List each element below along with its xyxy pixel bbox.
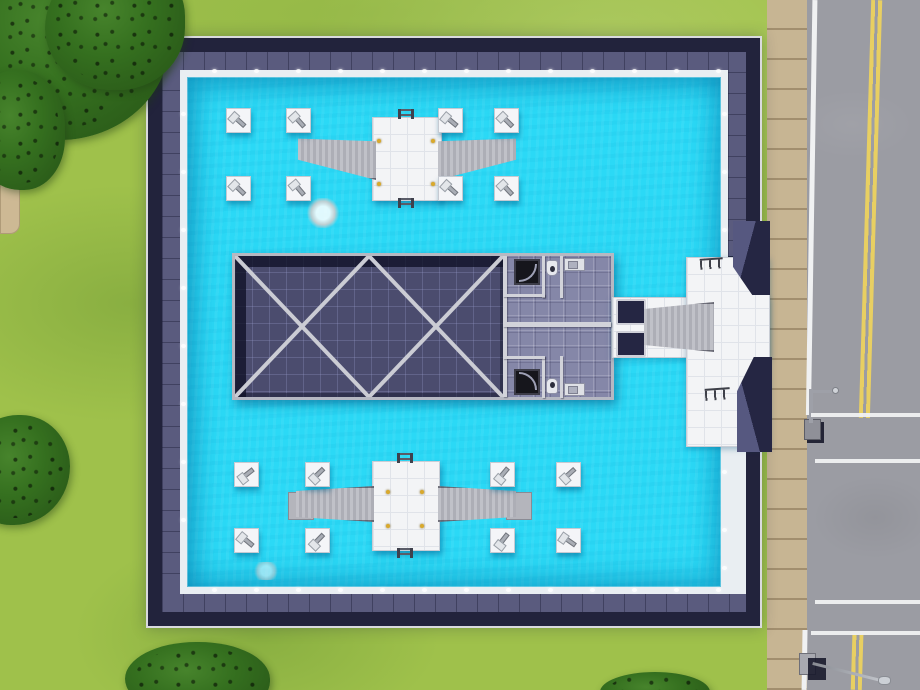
street-lamp-shadow (808, 658, 826, 680)
street-lamp-head (832, 387, 839, 394)
pool-light (254, 69, 259, 73)
entrance-gate-block (616, 299, 646, 325)
diving-board[interactable] (231, 181, 247, 196)
platform-marker-light (431, 139, 435, 143)
diving-platform[interactable] (490, 462, 515, 487)
sidewalk (767, 0, 807, 690)
pool-deck-edge (728, 446, 746, 594)
diving-board[interactable] (495, 532, 509, 548)
pool-light (506, 588, 511, 592)
diving-board[interactable] (291, 113, 306, 129)
restroom-wall (503, 322, 611, 327)
diving-board[interactable] (231, 113, 247, 128)
water-slide[interactable] (296, 486, 374, 522)
pool-light (181, 228, 186, 232)
pool-light (722, 112, 727, 116)
pool-light (380, 69, 385, 73)
pool-light (181, 112, 186, 116)
pool-light (212, 588, 217, 592)
roof-cross-bracing-icon (235, 256, 503, 397)
road-stop-line (815, 600, 920, 604)
pool-light (716, 588, 721, 592)
restroom-wall (542, 356, 545, 398)
toilet[interactable] (546, 378, 558, 394)
street-lamp-arm (812, 390, 834, 393)
diving-platform[interactable] (234, 462, 259, 487)
pool-light (674, 69, 679, 73)
pool-light (464, 588, 469, 592)
pool-light (674, 588, 679, 592)
pool-light (548, 69, 553, 73)
diving-board[interactable] (442, 113, 458, 128)
water-splash (306, 198, 340, 228)
restroom-wall (542, 256, 545, 298)
diving-board[interactable] (495, 466, 510, 482)
road-stop-line (811, 413, 920, 417)
water-splash (252, 562, 280, 580)
sink[interactable] (564, 258, 585, 271)
pool-light (181, 170, 186, 174)
pool-light (181, 518, 186, 522)
pool-light (722, 528, 727, 532)
pool-light (422, 588, 427, 592)
roof-tile-band (162, 594, 746, 612)
hall-roof (235, 256, 503, 397)
pool-light (632, 588, 637, 592)
diving-platform[interactable] (226, 176, 251, 201)
platform-marker-light (431, 182, 435, 186)
swim-platform[interactable] (372, 461, 440, 551)
diving-platform[interactable] (438, 176, 463, 201)
pool-light (716, 69, 721, 73)
pool-light (296, 69, 301, 73)
pool-light (338, 69, 343, 73)
pool-light (548, 588, 553, 592)
diving-board[interactable] (499, 181, 514, 197)
diving-platform[interactable] (494, 176, 519, 201)
diving-board[interactable] (561, 467, 577, 482)
diving-platform[interactable] (494, 108, 519, 133)
pool-light (506, 69, 511, 73)
diving-platform[interactable] (226, 108, 251, 133)
diving-platform[interactable] (438, 108, 463, 133)
diving-platform[interactable] (286, 108, 311, 133)
entrance-gate-block (616, 331, 646, 357)
pool-light (380, 588, 385, 592)
diving-platform[interactable] (556, 462, 581, 487)
street-lamp-pole (809, 389, 813, 423)
pool-ladder[interactable] (397, 548, 413, 558)
pool-light (422, 69, 427, 73)
swim-platform[interactable] (372, 117, 442, 201)
diving-board[interactable] (238, 533, 254, 548)
toilet[interactable] (546, 260, 558, 276)
restroom-wall (503, 294, 545, 297)
pool-ladder[interactable] (398, 109, 414, 119)
entrance-railing[interactable] (705, 387, 731, 401)
pool-light (181, 344, 186, 348)
sink[interactable] (564, 383, 585, 396)
pool-light (181, 286, 186, 290)
pool-light (632, 69, 637, 73)
diving-board[interactable] (499, 113, 515, 129)
center-line-segment (851, 635, 864, 690)
roof-tile-band (162, 52, 746, 70)
road-stop-line (811, 631, 920, 635)
water-slide[interactable] (438, 486, 516, 522)
platform-marker-light (420, 524, 424, 528)
diving-board[interactable] (443, 181, 459, 196)
diving-board[interactable] (310, 533, 325, 549)
pool-ladder[interactable] (397, 453, 413, 463)
diving-platform[interactable] (305, 462, 330, 487)
pool-light (212, 69, 217, 73)
game-viewport (0, 0, 920, 690)
diving-platform[interactable] (234, 528, 259, 553)
roof-tile-band (162, 70, 180, 594)
diving-board[interactable] (310, 467, 326, 482)
street-lamp-head (878, 676, 891, 685)
pool-light (181, 460, 186, 464)
restroom-wall (503, 356, 545, 359)
diving-platform[interactable] (305, 528, 330, 553)
pool-light (254, 588, 259, 592)
platform-marker-light (420, 490, 424, 494)
restroom-wall (560, 356, 563, 398)
pool-light (590, 69, 595, 73)
pool-light (590, 588, 595, 592)
pool-light (722, 228, 727, 232)
pool-light (722, 470, 727, 474)
shower-stall[interactable] (514, 369, 540, 395)
entrance-ramp[interactable] (644, 302, 714, 352)
entrance-railing[interactable] (700, 257, 724, 270)
platform-marker-light (386, 490, 390, 494)
shower-stall[interactable] (514, 259, 540, 285)
pool-light (338, 588, 343, 592)
restroom-wall (560, 256, 563, 298)
pool-light (464, 69, 469, 73)
platform-marker-light (386, 524, 390, 528)
platform-marker-light (377, 182, 381, 186)
diving-board[interactable] (560, 534, 577, 548)
platform-marker-light (377, 139, 381, 143)
pool-ladder[interactable] (398, 198, 414, 208)
road-stop-line (815, 459, 920, 463)
diving-board[interactable] (238, 467, 254, 481)
pool-light (296, 588, 301, 592)
diving-platform[interactable] (556, 528, 581, 553)
diving-board[interactable] (291, 180, 306, 196)
pool-light (722, 566, 727, 570)
pool-light (722, 170, 727, 174)
diving-platform[interactable] (490, 528, 515, 553)
pool-light (181, 402, 186, 406)
